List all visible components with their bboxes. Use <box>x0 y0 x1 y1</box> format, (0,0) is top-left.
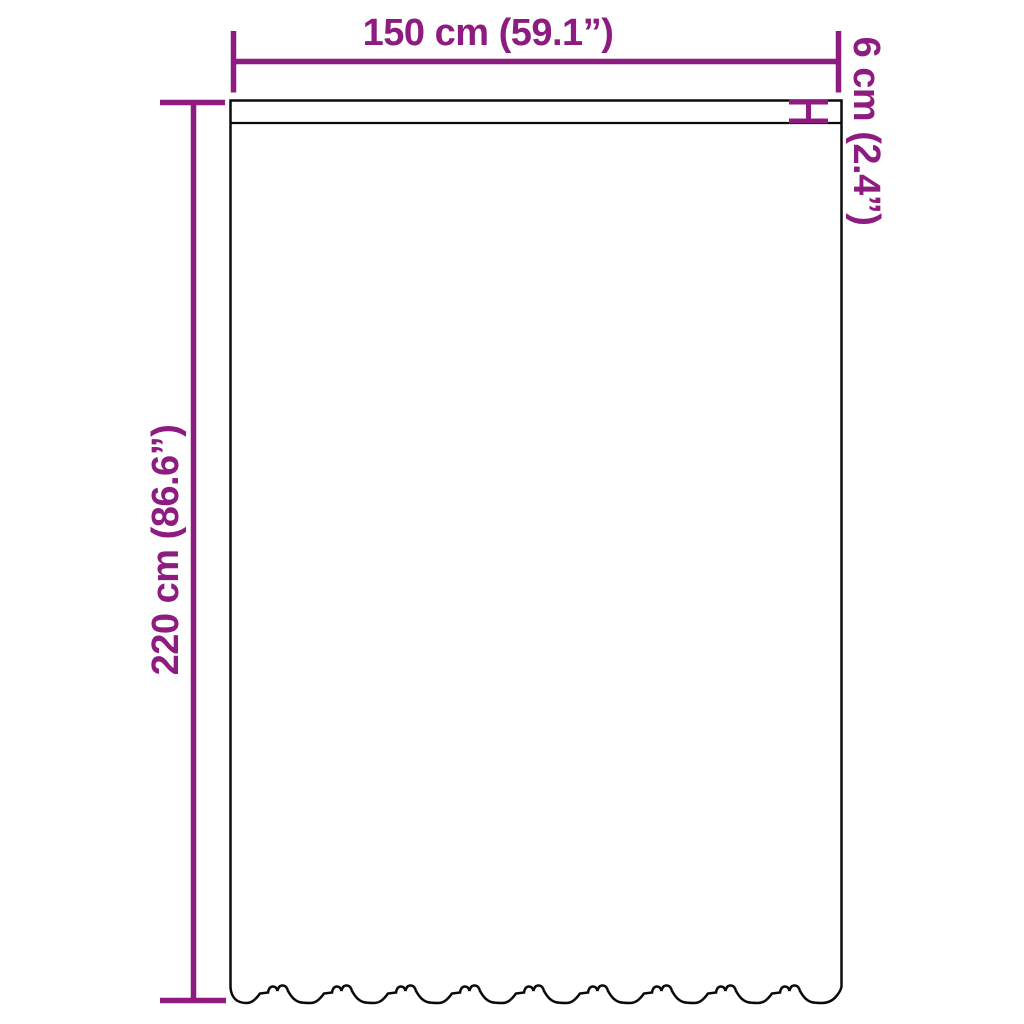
curtain-outline <box>231 101 842 1004</box>
width-dimension: 150 cm (59.1”) <box>234 12 839 93</box>
header-dimension-label: 6 cm (2.4”) <box>845 37 887 226</box>
height-dimension-label: 220 cm (86.6”) <box>145 425 187 676</box>
width-dimension-label: 150 cm (59.1”) <box>363 12 614 54</box>
curtain-dimension-svg: 150 cm (59.1”) 220 cm (86.6”) 6 cm (2.4”… <box>0 0 1024 1024</box>
dimension-diagram: 150 cm (59.1”) 220 cm (86.6”) 6 cm (2.4”… <box>0 0 1024 1024</box>
height-dimension: 220 cm (86.6”) <box>145 103 226 1001</box>
